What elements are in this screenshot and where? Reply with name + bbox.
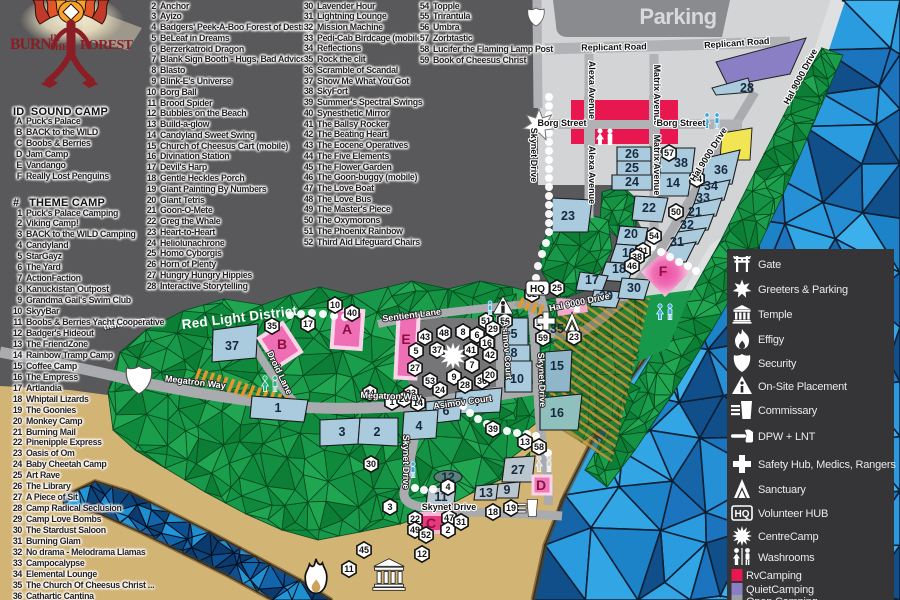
svg-text:28: 28 [460,380,470,390]
svg-text:Megatron Way: Megatron Way [360,390,421,402]
svg-text:54: 54 [649,231,659,241]
svg-text:THE: THE [49,42,68,52]
svg-text:17: 17 [585,273,599,287]
svg-text:18: 18 [488,507,498,517]
svg-text:10: 10 [330,300,340,310]
svg-text:Open Camping: Open Camping [746,596,818,600]
svg-text:31: 31 [456,517,466,527]
svg-text:50: 50 [671,207,681,217]
svg-text:58: 58 [534,442,544,452]
svg-text:RvCamping: RvCamping [746,570,802,582]
svg-text:59: 59 [538,333,548,343]
svg-text:B: B [277,336,287,352]
svg-text:1: 1 [275,401,282,415]
svg-text:19: 19 [506,503,516,513]
svg-text:36: 36 [714,163,728,177]
svg-text:Security: Security [758,358,797,370]
svg-text:CentreCamp: CentreCamp [758,531,818,543]
svg-text:32: 32 [680,218,694,232]
svg-text:Parking: Parking [639,4,716,29]
svg-text:16: 16 [550,406,564,420]
svg-text:26: 26 [625,147,639,161]
svg-text:37: 37 [432,345,442,355]
svg-text:On-Site Placement: On-Site Placement [758,381,847,393]
svg-text:20: 20 [624,227,638,241]
svg-text:41: 41 [466,345,476,355]
svg-text:HQ: HQ [735,509,750,520]
svg-text:42: 42 [485,350,495,360]
svg-text:57: 57 [664,148,674,158]
svg-text:11: 11 [344,564,354,574]
svg-text:31: 31 [670,235,684,249]
svg-text:28: 28 [740,81,754,95]
svg-text:6: 6 [474,330,479,340]
svg-text:Greeters & Parking: Greeters & Parking [758,284,848,296]
svg-text:13: 13 [520,437,530,447]
svg-text:12: 12 [417,549,427,559]
svg-text:8: 8 [460,327,465,337]
svg-text:Skynet Drive: Skynet Drive [401,435,411,490]
svg-text:25: 25 [552,283,562,293]
svg-text:Temple: Temple [758,309,792,321]
svg-text:A: A [342,321,352,337]
svg-text:52: 52 [421,530,431,540]
svg-text:2: 2 [374,425,381,439]
svg-text:Alexa Avenue: Alexa Avenue [587,146,597,204]
svg-text:2: 2 [445,525,450,535]
svg-text:48: 48 [439,328,449,338]
svg-text:4: 4 [445,482,450,492]
svg-text:22: 22 [642,201,656,215]
svg-text:7: 7 [469,360,474,370]
svg-text:Volunteer HUB: Volunteer HUB [758,508,828,520]
svg-text:Washrooms: Washrooms [758,552,815,564]
svg-text:Safety Hub, Medics, Rangers: Safety Hub, Medics, Rangers [758,459,896,471]
svg-text:Replicant Road: Replicant Road [581,41,647,52]
svg-text:E: E [401,331,410,347]
svg-text:17: 17 [303,319,313,329]
svg-text:23: 23 [561,209,575,223]
svg-text:Borg Street: Borg Street [656,118,705,128]
svg-text:45: 45 [359,545,369,555]
svg-text:38: 38 [674,156,688,170]
svg-text:5: 5 [413,346,418,356]
svg-text:DPW + LNT: DPW + LNT [758,431,816,443]
svg-text:30: 30 [627,281,641,295]
svg-text:Skynet Drive: Skynet Drive [529,128,539,183]
svg-text:FOREST: FOREST [80,38,134,53]
svg-text:Alexa Avenue: Alexa Avenue [587,61,597,119]
svg-text:14: 14 [666,176,680,190]
svg-text:Effigy: Effigy [758,334,785,346]
svg-text:24: 24 [625,175,639,189]
svg-text:29: 29 [488,324,498,334]
svg-text:D: D [536,477,546,493]
svg-text:35: 35 [267,321,277,331]
svg-text:Matrix Avenue: Matrix Avenue [652,65,662,126]
svg-text:21: 21 [688,205,702,219]
svg-text:15: 15 [550,359,564,373]
svg-text:39: 39 [488,424,498,434]
svg-text:18: 18 [612,262,626,276]
svg-text:25: 25 [625,161,639,175]
svg-text:3: 3 [387,502,392,512]
svg-text:27: 27 [410,363,420,373]
svg-text:33: 33 [696,191,710,205]
svg-text:23: 23 [569,332,579,342]
svg-text:Matrix Avenue: Matrix Avenue [652,135,662,196]
svg-text:3: 3 [339,425,346,439]
svg-text:Borg Street: Borg Street [537,118,586,128]
svg-text:Sanctuary: Sanctuary [758,484,806,496]
svg-text:Commissary: Commissary [758,405,818,417]
svg-text:Skynet Drive: Skynet Drive [536,352,548,407]
svg-text:46: 46 [627,261,637,271]
svg-text:9: 9 [451,372,456,382]
svg-text:F: F [659,263,668,279]
svg-text:Gate: Gate [758,259,781,271]
svg-text:HQ: HQ [530,284,545,295]
svg-text:4: 4 [416,419,423,433]
svg-text:30: 30 [366,459,376,469]
svg-text:43: 43 [420,332,430,342]
svg-text:QuietCamping: QuietCamping [746,584,814,596]
svg-text:40: 40 [347,308,357,318]
svg-text:BURN: BURN [10,36,51,53]
svg-text:13: 13 [479,486,493,500]
svg-text:27: 27 [511,463,525,477]
svg-text:37: 37 [225,339,239,353]
svg-text:20: 20 [485,370,495,380]
svg-text:Skynet Drive: Skynet Drive [422,502,477,512]
svg-text:24: 24 [435,385,445,395]
svg-text:9: 9 [504,483,511,497]
